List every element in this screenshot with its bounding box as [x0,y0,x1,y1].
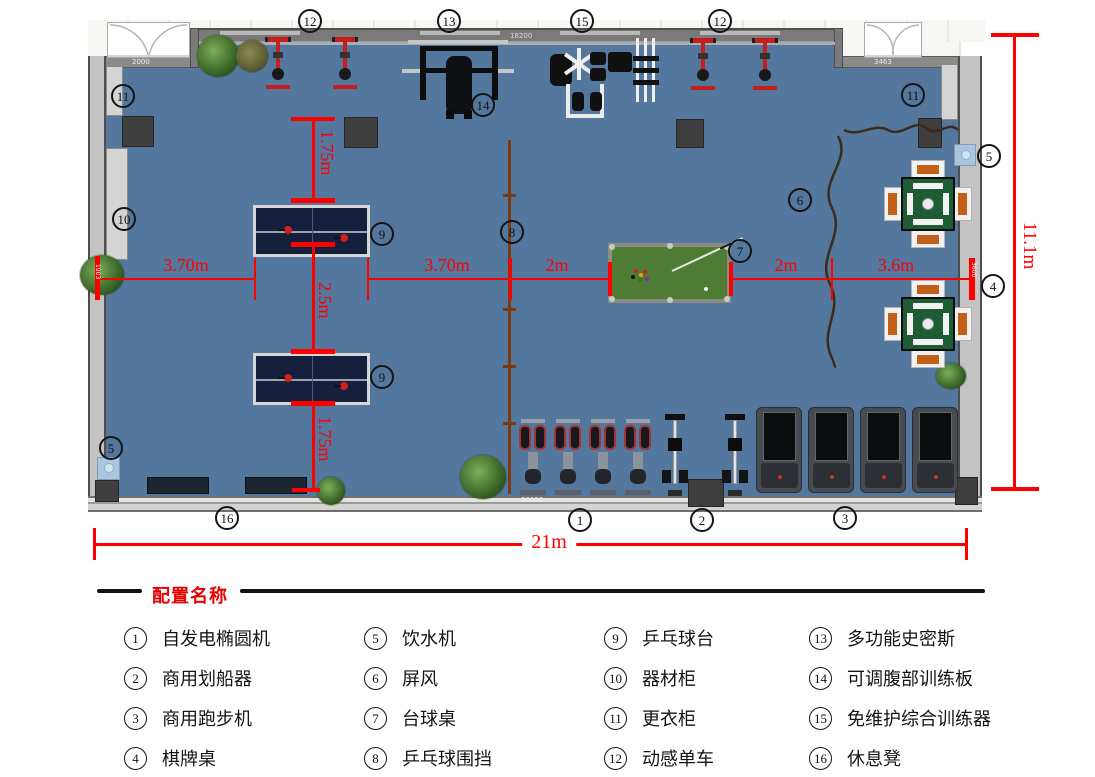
legend-item-16: 16休息凳 [809,745,901,771]
door-swing-arcs-right [865,23,921,57]
dim-label-total-height: 11.1m [1020,222,1038,269]
gym-floorplan: 2000 18200 3463 20000 [0,0,1095,777]
equipment-cabinet [106,148,128,260]
legend-item-6: 6屏风 [364,665,438,691]
legend-num: 10 [604,667,627,690]
legend-num: 6 [364,667,387,690]
rest-bench [147,477,209,494]
marker-7: 7 [728,239,752,263]
legend-label: 自发电椭圆机 [162,625,270,651]
dim-tick [831,258,833,300]
legend-num: 2 [124,667,147,690]
legend-num: 13 [809,627,832,650]
spin-bike [265,37,291,89]
chair [954,187,972,221]
legend-label: 多功能史密斯 [847,625,955,651]
legend-num: 5 [364,627,387,650]
legend-num: 4 [124,747,147,770]
dim-label-175b: 1.75m [316,416,334,462]
elliptical [622,419,654,495]
chair [884,187,902,221]
door-swing-arcs-left [108,23,189,57]
spin-bike [332,37,358,89]
wall-jog-right [834,28,843,68]
wall-window-4 [700,31,780,35]
legend-num: 12 [604,747,627,770]
legend-divider-right [240,589,985,593]
legend-item-3: 3商用跑步机 [124,705,252,731]
dim-label-36: 3.6m [878,256,915,274]
pp-barrier-foot [503,422,516,425]
plant [197,35,239,77]
anno-top-wall: 18200 [510,33,532,40]
plant [317,477,345,505]
plant [460,455,506,499]
legend-item-7: 7台球桌 [364,705,456,731]
marker-11: 11 [111,84,135,108]
dim-line [731,278,971,280]
dim-tick [965,528,968,560]
entrance-door-right [864,22,922,58]
legend-num: 11 [604,707,627,730]
dim-tick [254,258,256,300]
legend-item-11: 11更衣柜 [604,705,696,731]
wall-window-1 [220,31,300,35]
anno-left-door: 2000 [132,59,150,66]
dim-line [312,121,315,201]
legend-label: 商用跑步机 [162,705,252,731]
marker-9: 9 [370,222,394,246]
marker-9: 9 [370,365,394,389]
dim-tick [291,349,335,354]
anno-right-door: 3463 [874,59,892,66]
marker-10: 10 [112,207,136,231]
chess-table [901,177,955,231]
dim-tick [509,258,512,300]
bin-bottom-right [955,477,978,505]
legend-label: 可调腹部训练板 [847,665,973,691]
legend-divider-left [97,589,142,593]
legend-item-1: 1自发电椭圆机 [124,625,270,651]
wall-window-3 [560,31,640,35]
dim-tick [93,528,96,560]
marker-5: 5 [977,144,1001,168]
chess-table [901,297,955,351]
legend-item-4: 4棋牌桌 [124,745,216,771]
dim-label-total-width: 21m [522,533,576,551]
legend-num: 1 [124,627,147,650]
dim-tick [367,258,369,300]
legend-num: 14 [809,667,832,690]
dim-tick [291,401,335,406]
ab-training-board [446,56,472,114]
pp-barrier-foot [503,308,516,311]
marker-12: 12 [708,9,732,33]
dispenser-bottle-icon [961,150,971,160]
dim-line [367,278,608,280]
marker-15: 15 [570,9,594,33]
marker-8: 8 [500,220,524,244]
water-dispenser-left [97,457,120,480]
chair [911,230,945,248]
legend-label: 台球桌 [402,705,456,731]
legend-item-2: 2商用划船器 [124,665,252,691]
legend-label: 商用划船器 [162,665,252,691]
pp-barrier-foot [503,365,516,368]
bin-mid-right [676,119,704,148]
marker-1: 1 [568,508,592,532]
chair [911,160,945,178]
chess-table-set [884,280,972,368]
legend-num: 16 [809,747,832,770]
marker-16: 16 [215,506,239,530]
legend-label: 乒乓球围挡 [402,745,492,771]
dim-tick [729,262,733,296]
dim-label-370b: 3.70m [424,256,470,274]
dim-label-2a: 2m [545,256,568,274]
dim-label-25: 2.5m [316,282,334,319]
marker-2: 2 [690,508,714,532]
spin-bike [690,38,716,90]
anno-dim-end: 3600 [970,262,977,277]
legend-label: 棋牌桌 [162,745,216,771]
legend-item-13: 13多功能史密斯 [809,625,955,651]
marker-3: 3 [833,506,857,530]
legend-title: 配置名称 [152,582,228,608]
equipment-rail [199,42,835,45]
legend-item-15: 15免维护综合训练器 [809,705,991,731]
legend-label: 器材柜 [642,665,696,691]
bin-mid-left [344,117,378,148]
dim-line [99,278,255,280]
legend-item-9: 9乒乓球台 [604,625,714,651]
legend-label: 休息凳 [847,745,901,771]
treadmill [860,407,906,493]
legend-item-12: 12动感单车 [604,745,714,771]
legend-label: 屏风 [402,665,438,691]
dim-tick [608,262,612,296]
bin-bottom-center [688,479,724,507]
dim-tick [292,488,320,492]
legend-item-5: 5饮水机 [364,625,456,651]
dim-tick [991,33,1039,37]
entrance-door-left [107,22,190,58]
rowing-machine [722,414,748,496]
legend-item-8: 8乒乓球围挡 [364,745,492,771]
elliptical [517,419,549,495]
chair [911,350,945,368]
bin-left-bottom [95,480,119,502]
marker-12: 12 [298,9,322,33]
multi-trainer [550,38,662,120]
chess-table-set [884,160,972,248]
marker-6: 6 [788,188,812,212]
marker-14: 14 [471,93,495,117]
legend-num: 8 [364,747,387,770]
legend-label: 动感单车 [642,745,714,771]
treadmill [808,407,854,493]
legend-label: 更衣柜 [642,705,696,731]
marker-5: 5 [99,436,123,460]
rowing-machine [662,414,688,496]
anno-dim-start: 1903 [94,264,101,279]
spin-bike [752,38,778,90]
ping-pong-table [253,353,370,405]
marker-11: 11 [901,83,925,107]
marker-13: 13 [437,9,461,33]
legend-label: 饮水机 [402,625,456,651]
chair [911,280,945,298]
anno-bottom-wall: 20000 [521,497,543,504]
dispenser-bottle-icon [104,463,114,473]
dim-label-370a: 3.70m [163,256,209,274]
bin-left-top [122,116,154,147]
dim-line-total-height [1013,35,1016,491]
legend-num: 9 [604,627,627,650]
legend-item-14: 14可调腹部训练板 [809,665,973,691]
legend-item-10: 10器材柜 [604,665,696,691]
dim-tick [991,487,1039,491]
dim-tick [291,117,335,121]
chair [884,307,902,341]
dim-tick [291,242,335,247]
dim-label-175a: 1.75m [318,130,336,176]
plant [80,255,124,295]
elliptical [587,419,619,495]
pp-barrier-foot [503,194,516,197]
legend-num: 15 [809,707,832,730]
treadmill [912,407,958,493]
chair [954,307,972,341]
dim-tick [291,198,335,203]
plant [236,40,268,72]
elliptical [552,419,584,495]
legend-num: 7 [364,707,387,730]
dim-label-2b: 2m [774,256,797,274]
legend-num: 3 [124,707,147,730]
legend-label: 免维护综合训练器 [847,705,991,731]
marker-4: 4 [981,274,1005,298]
wall-window-2 [420,31,500,35]
treadmill [756,407,802,493]
legend-label: 乒乓球台 [642,625,714,651]
